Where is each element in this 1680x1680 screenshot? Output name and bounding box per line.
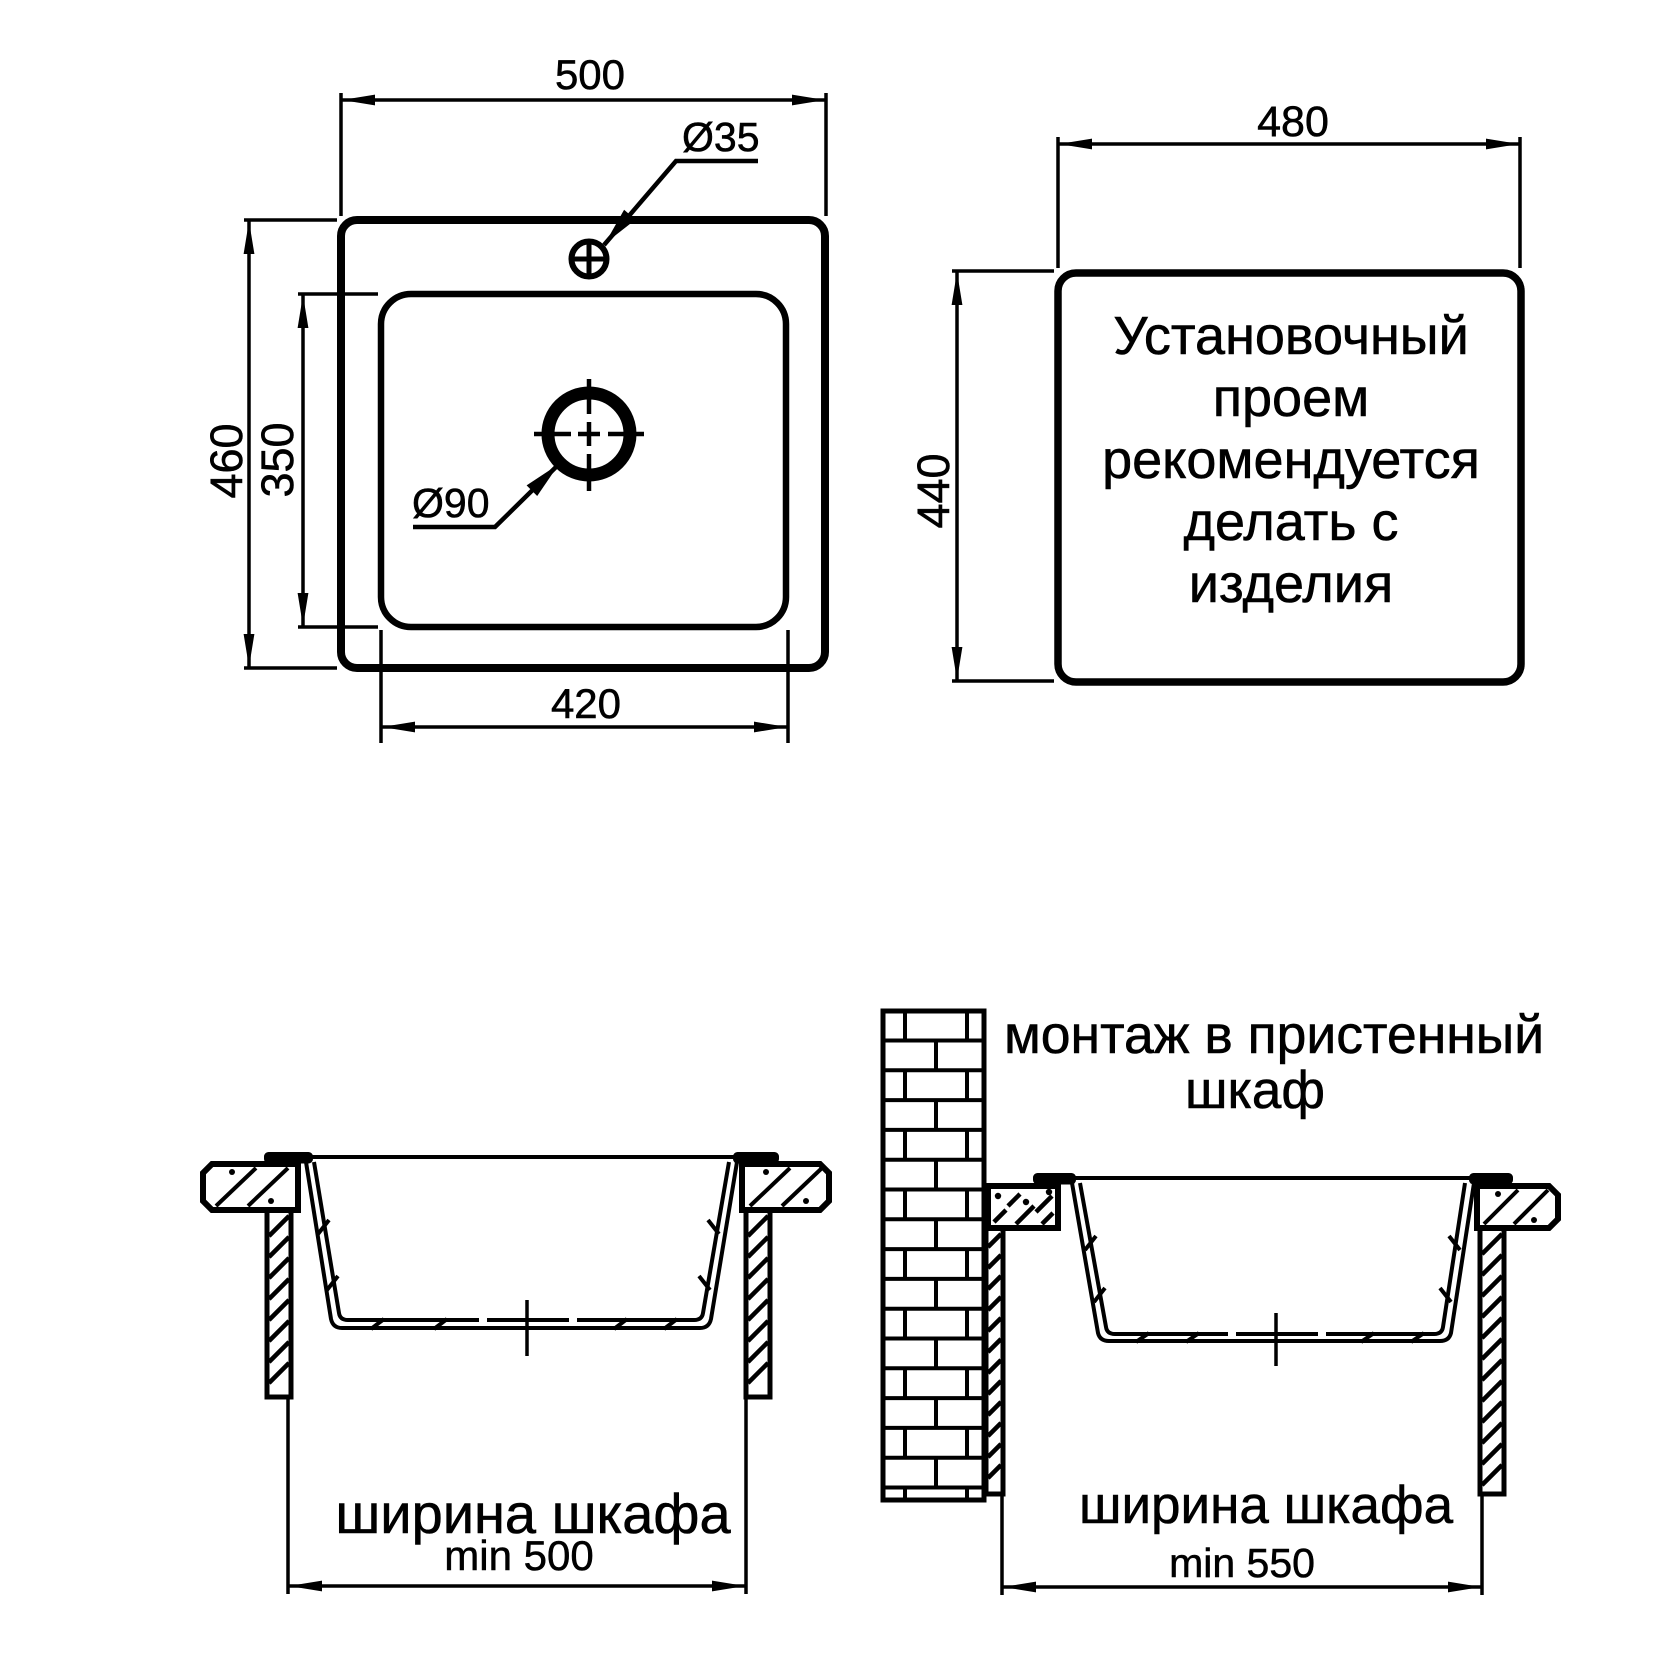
svg-text:min 550: min 550	[1169, 1540, 1315, 1586]
svg-text:рекомендуется: рекомендуется	[1102, 430, 1480, 490]
svg-text:проем: проем	[1213, 368, 1369, 428]
svg-text:420: 420	[551, 680, 621, 727]
svg-text:делать с: делать с	[1184, 492, 1399, 552]
svg-text:480: 480	[1257, 98, 1329, 146]
svg-text:монтаж в пристенный: монтаж в пристенный	[1004, 1006, 1544, 1065]
svg-text:Ø35: Ø35	[682, 114, 760, 160]
svg-text:шкаф: шкаф	[1185, 1061, 1325, 1120]
svg-text:min 500: min 500	[444, 1532, 593, 1579]
svg-text:350: 350	[252, 422, 303, 497]
svg-text:ширина шкафа: ширина шкафа	[1079, 1476, 1454, 1535]
svg-text:Установочный: Установочный	[1113, 306, 1469, 366]
svg-text:500: 500	[555, 51, 625, 98]
svg-text:460: 460	[201, 423, 252, 498]
svg-text:Ø90: Ø90	[412, 480, 490, 526]
svg-text:изделия: изделия	[1189, 554, 1393, 614]
svg-text:440: 440	[908, 453, 959, 528]
